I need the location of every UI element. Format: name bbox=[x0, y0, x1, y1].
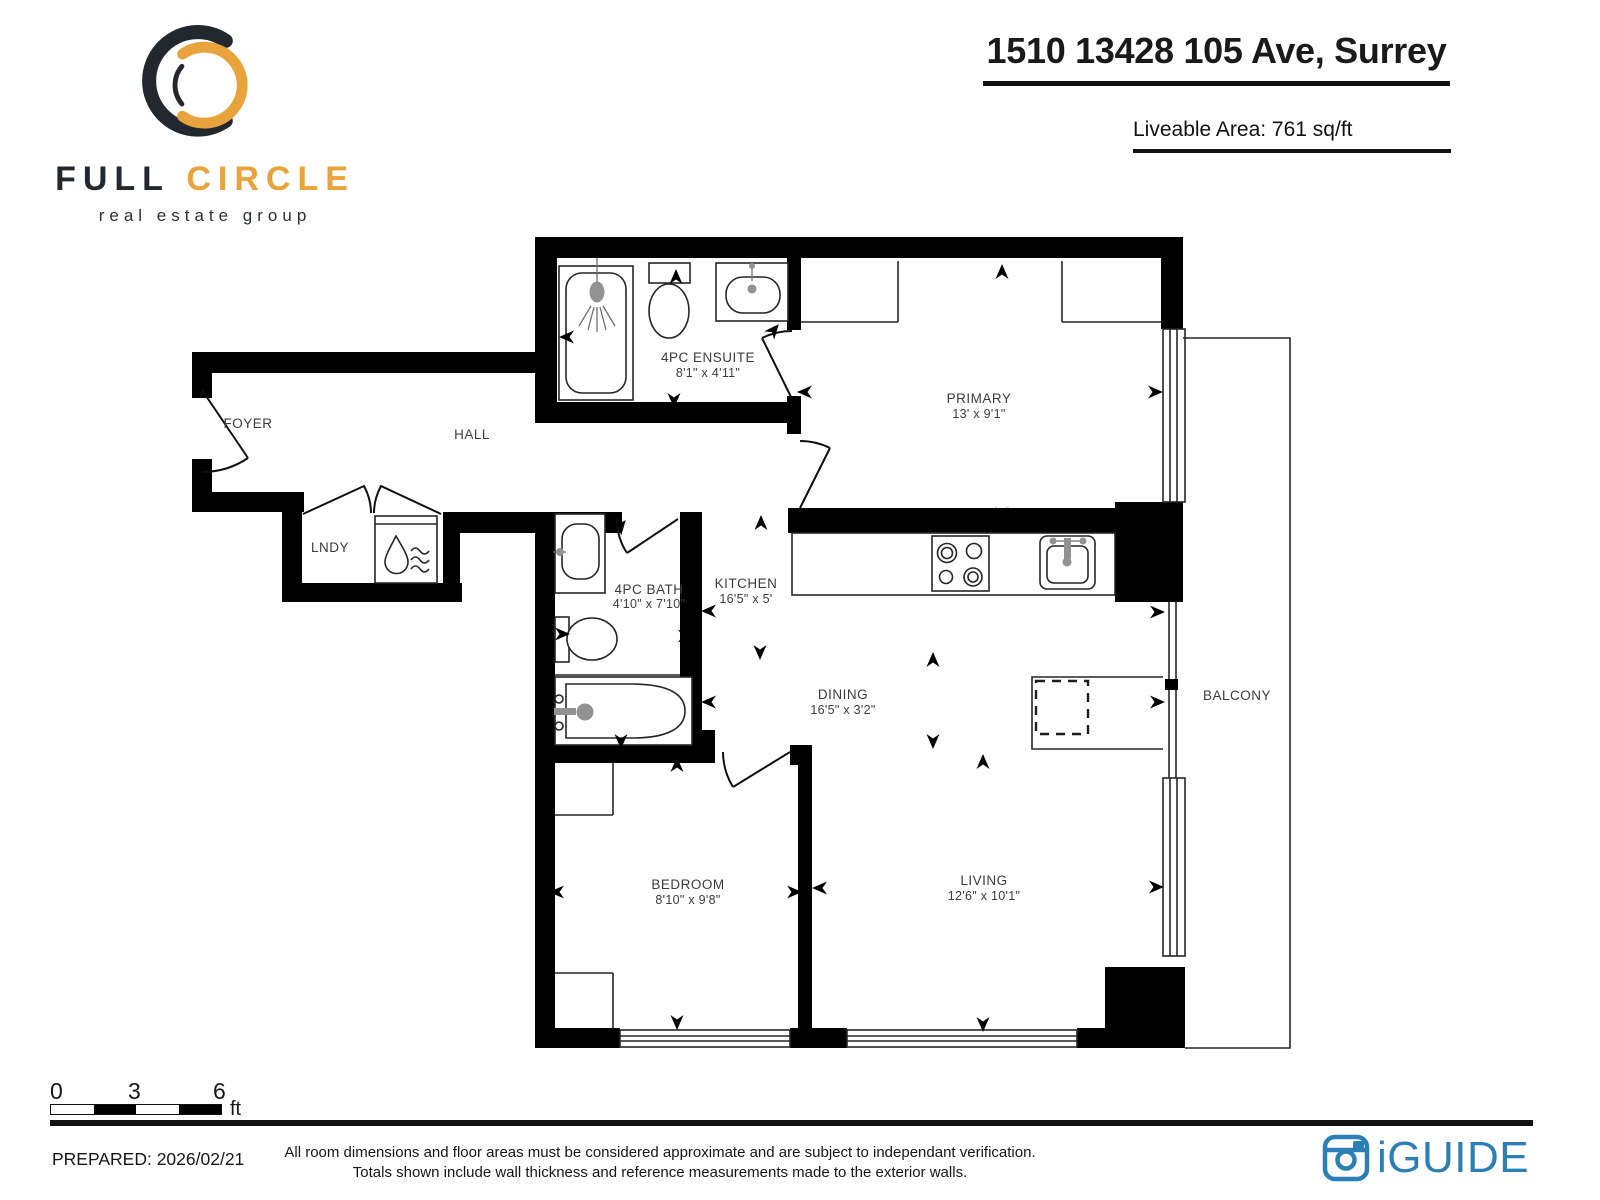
dims-kitchen: 16'5" x 5' bbox=[719, 592, 772, 606]
scale-unit: ft bbox=[230, 1098, 241, 1121]
washer-icon bbox=[375, 516, 437, 583]
label-bath: 4PC BATH bbox=[614, 582, 683, 597]
floorplan-page: FULL CIRCLE real estate group 1510 13428… bbox=[0, 0, 1600, 1200]
scale-tick-3: 3 bbox=[128, 1078, 141, 1105]
direction-arrows bbox=[549, 264, 1165, 1032]
ensuite-toilet bbox=[649, 263, 690, 283]
scale-tick-6: 6 bbox=[213, 1078, 226, 1105]
dims-living: 12'6" x 10'1" bbox=[948, 889, 1020, 903]
windows-layer bbox=[620, 329, 1185, 1047]
disclaimer-line1: All room dimensions and floor areas must… bbox=[60, 1143, 1260, 1163]
label-living: LIVING bbox=[960, 873, 1007, 888]
label-hall: HALL bbox=[454, 427, 490, 442]
iguide-brand: iGUIDE bbox=[1322, 1133, 1529, 1183]
disclaimer-line2: Totals shown include wall thickness and … bbox=[60, 1163, 1260, 1183]
dims-ensuite: 8'1" x 4'11" bbox=[676, 366, 740, 380]
label-kitchen: KITCHEN bbox=[715, 576, 778, 591]
label-bedroom: BEDROOM bbox=[651, 877, 724, 892]
shower-head-icon bbox=[590, 282, 605, 303]
footer-divider bbox=[50, 1120, 1533, 1126]
label-ensuite: 4PC ENSUITE bbox=[661, 350, 755, 365]
label-primary: PRIMARY bbox=[947, 391, 1012, 406]
iguide-wordmark: iGUIDE bbox=[1377, 1133, 1529, 1183]
room-labels: FOYER HALL LNDY 4PC ENSUITE 8'1" x 4'11"… bbox=[223, 350, 1271, 907]
builtins-layer bbox=[555, 261, 1163, 1028]
dims-bath: 4'10" x 7'10" bbox=[613, 597, 685, 611]
label-dining: DINING bbox=[818, 687, 868, 702]
fixtures-layer bbox=[375, 258, 1095, 745]
iguide-camera-icon bbox=[1322, 1133, 1370, 1183]
dims-dining: 16'5" x 3'2" bbox=[810, 703, 875, 717]
label-balcony: BALCONY bbox=[1203, 688, 1271, 703]
dims-bedroom: 8'10" x 9'8" bbox=[655, 893, 720, 907]
label-foyer: FOYER bbox=[223, 416, 272, 431]
dims-primary: 13' x 9'1" bbox=[952, 407, 1005, 421]
label-lndy: LNDY bbox=[311, 540, 349, 555]
disclaimer-text: All room dimensions and floor areas must… bbox=[60, 1143, 1260, 1183]
floorplan-drawing: FOYER HALL LNDY 4PC ENSUITE 8'1" x 4'11"… bbox=[0, 0, 1600, 1200]
scale-tick-0: 0 bbox=[50, 1078, 63, 1105]
scale-bar bbox=[50, 1104, 222, 1115]
